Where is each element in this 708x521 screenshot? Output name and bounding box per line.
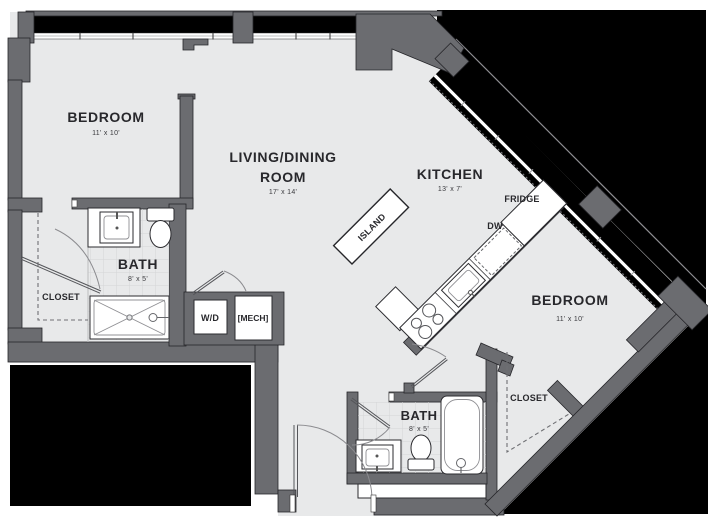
closet-right-label: CLOSET [510,393,548,403]
window-glass-top [33,16,357,34]
toilet-tank [408,459,434,470]
floor-plan-svg: ISLAND BEDROOM 11' x 10' [0,0,708,521]
room-label-bedroom-2: BEDROOM [531,292,608,308]
room-dims-bedroom-2: 11' x 10' [556,316,584,323]
wall-bedroom1-divider [180,96,193,208]
room-label-kitchen: KITCHEN [417,166,483,182]
closet-left-label: CLOSET [42,292,80,302]
room-label-living-1: LIVING/DINING [229,149,336,165]
floor-plan: ISLAND BEDROOM 11' x 10' [0,0,708,521]
toilet-bowl [411,435,431,461]
door-jamb [290,495,295,512]
wall-bath1-right [169,204,186,346]
toilet-bowl [150,221,171,248]
door-jamb [371,495,376,512]
room-dims-kitchen: 13' x 7' [438,186,462,193]
room-dims-bath-1: 8' x 5' [128,276,148,283]
wall-end-cap [72,200,77,207]
drain-icon [116,227,119,230]
room-label-bedroom-1: BEDROOM [67,109,144,125]
tub-faucet-icon [457,459,466,468]
shaft-box [358,484,486,498]
drain-icon [376,455,379,458]
washer-dryer-label: W/D [201,313,219,323]
shower-valve-icon [149,314,157,322]
wall-left-mid [8,80,22,200]
wall-left-lower [8,210,22,330]
room-dims-bedroom-1: 11' x 10' [92,130,120,137]
wall-end-cap [389,393,394,401]
wall-corridor [255,342,278,494]
room-dims-living: 17' x 14' [269,189,297,196]
room-label-living-2: ROOM [260,169,306,185]
dishwasher-label: DW [487,221,503,231]
wall-bath2-right [486,349,497,500]
room-dims-bath-2: 8' x 5' [409,426,429,433]
fridge-label: FRIDGE [504,194,539,204]
wall-entry-right [374,498,504,515]
toilet-tank [147,208,174,221]
pier-top-mid [233,12,253,43]
mechanical-label: [MECH] [238,313,269,323]
room-label-bath-2: BATH [401,408,438,423]
window-band-top [33,33,357,40]
exterior-lower-left [10,365,251,506]
shower-drain-icon [127,315,132,320]
wall-left-upper [8,38,30,82]
room-label-bath-1: BATH [118,256,158,272]
